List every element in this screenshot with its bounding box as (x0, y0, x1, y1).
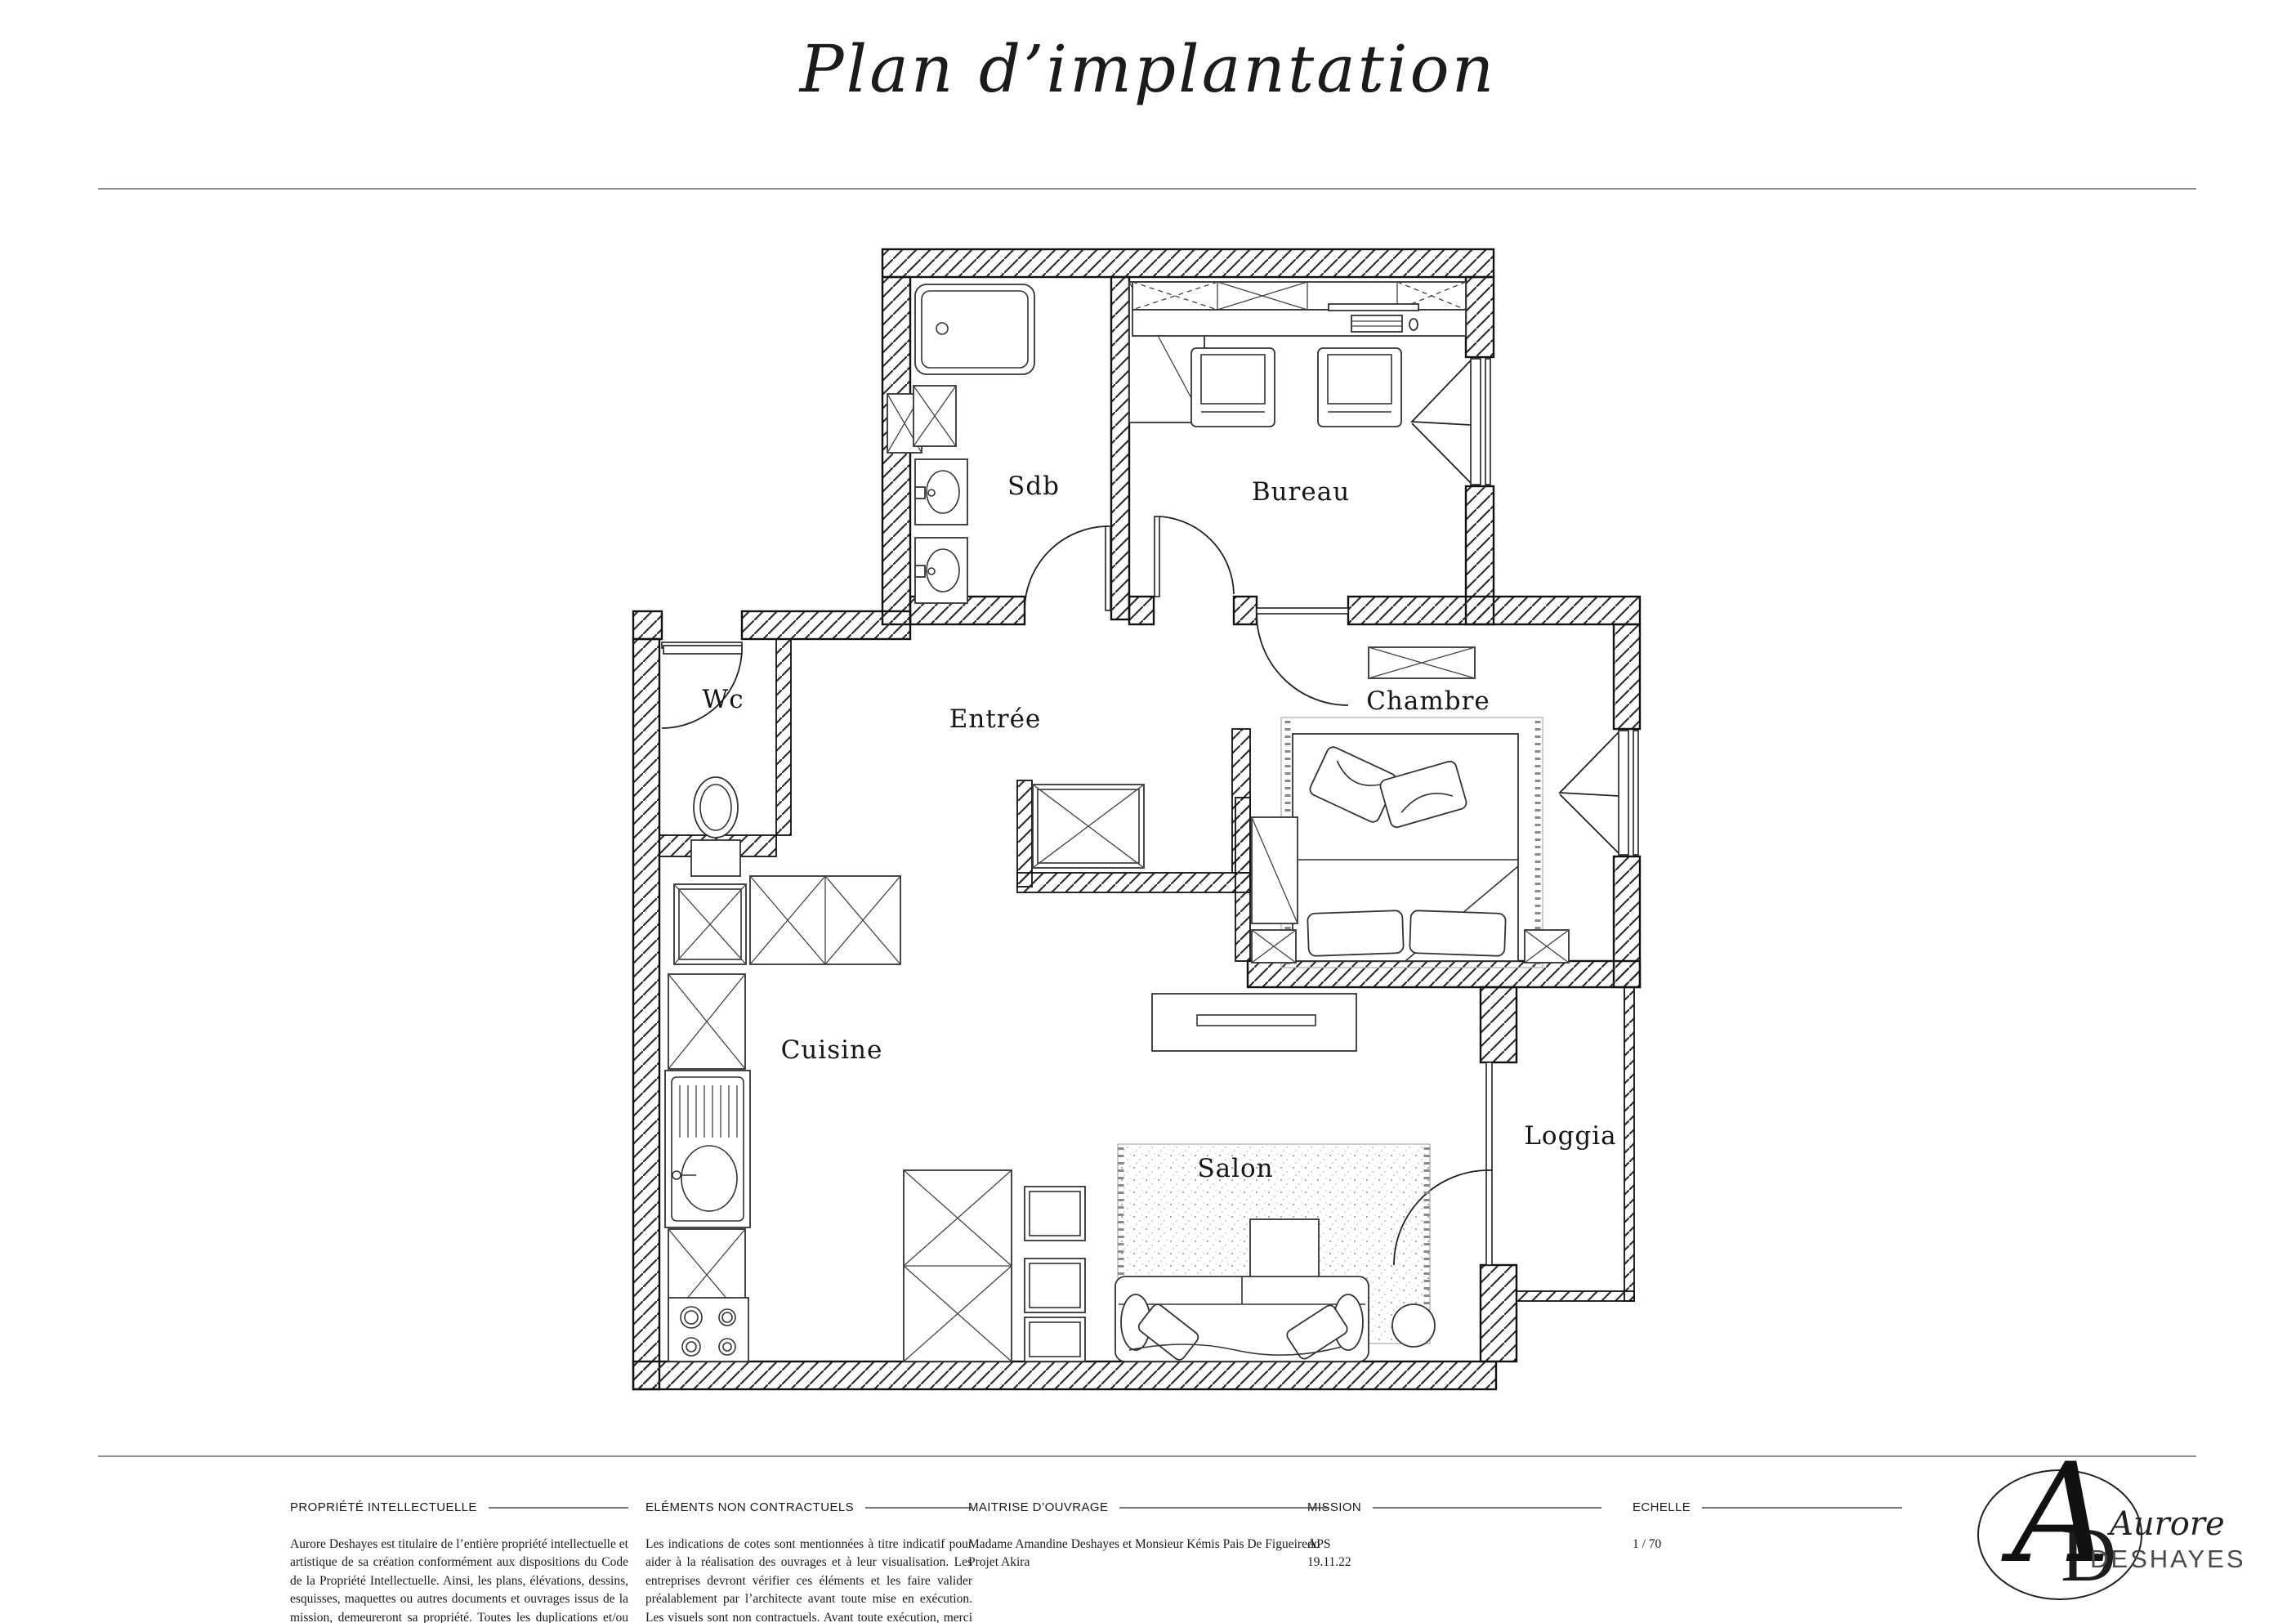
dining-table-icon (904, 1170, 1012, 1361)
washing-machine-icon (913, 386, 956, 446)
footer-section-propriete: PROPRIÉTÉ INTELLECTUELLE Aurore Deshayes… (290, 1500, 628, 1623)
heading-rule (489, 1507, 628, 1509)
heading-rule (1373, 1507, 1601, 1509)
chambre-window-icon (1560, 731, 1638, 855)
footer-body: Les indications de cotes sont mentionnée… (645, 1536, 972, 1623)
footer-rule (98, 1455, 2196, 1457)
floor-plan: Sdb Bureau Wc Entrée Chambre Cuisine Sal… (629, 245, 1659, 1414)
kitchen-sink-icon (665, 1071, 750, 1227)
room-label-salon: Salon (1197, 1154, 1273, 1183)
chambre-wardrobe-icon (1252, 817, 1298, 923)
footer-body: APS 19.11.22 (1307, 1536, 1601, 1572)
footer-section-echelle: ECHELLE 1 / 70 (1633, 1500, 1902, 1554)
footer-heading-label: ELÉMENTS NON CONTRACTUELS (645, 1500, 854, 1514)
footer-body: Aurore Deshayes est titulaire de l’entiè… (290, 1536, 628, 1623)
page-title: Plan d’implantation (0, 31, 2296, 107)
heading-rule (1702, 1507, 1902, 1509)
bureau-door-icon (1155, 516, 1234, 597)
footer-heading: ELÉMENTS NON CONTRACTUELS (645, 1500, 972, 1514)
side-table-icon (1392, 1304, 1435, 1347)
page: Plan d’implantation (0, 0, 2296, 1623)
footer-heading: MISSION (1307, 1500, 1601, 1514)
room-label-bureau: Bureau (1252, 477, 1350, 507)
room-label-wc: Wc (702, 685, 744, 714)
sofa-icon (1115, 1276, 1369, 1362)
bed-icon (1293, 734, 1518, 961)
bureau-window-icon (1412, 359, 1490, 485)
room-label-sdb: Sdb (1007, 472, 1060, 501)
footer-heading-label: ECHELLE (1633, 1500, 1691, 1514)
footer-heading: PROPRIÉTÉ INTELLECTUELLE (290, 1500, 628, 1514)
bathtub-icon (915, 284, 1034, 374)
entrance-door-icon (1257, 608, 1348, 705)
entry-closet-icon (1033, 785, 1144, 868)
office-chair-icon (1191, 348, 1401, 427)
heading-rule (865, 1507, 972, 1509)
logo-last-name: DESHAYES (2090, 1545, 2246, 1574)
footer-body: 1 / 70 (1633, 1536, 1902, 1554)
footer-body: Madame Amandine Deshayes et Monsieur Kém… (968, 1536, 1328, 1572)
sdb-door-icon (1025, 526, 1110, 610)
room-label-chambre: Chambre (1366, 686, 1490, 716)
footer-heading-label: PROPRIÉTÉ INTELLECTUELLE (290, 1500, 477, 1514)
room-label-entree: Entrée (949, 704, 1042, 734)
chambre-shelf-icon (1369, 647, 1475, 678)
room-label-cuisine: Cuisine (781, 1035, 883, 1065)
vanity-sink-icon (915, 459, 967, 603)
desk-icon (1132, 282, 1466, 336)
architect-logo: D A Aurore DESHAYES (1969, 1463, 2263, 1610)
footer-heading-label: MAITRISE D’OUVRAGE (968, 1500, 1108, 1514)
footer-section-mission: MISSION APS 19.11.22 (1307, 1500, 1601, 1572)
footer-heading-label: MISSION (1307, 1500, 1361, 1514)
dining-chair-icon (1025, 1187, 1085, 1361)
footer-section-elements: ELÉMENTS NON CONTRACTUELS Les indication… (645, 1500, 972, 1623)
logo-first-name: Aurore (2110, 1505, 2225, 1543)
header-rule (98, 188, 2196, 190)
stove-icon (668, 1298, 748, 1361)
footer-section-maitrise: MAITRISE D’OUVRAGE Madame Amandine Desha… (968, 1500, 1328, 1572)
footer-heading: MAITRISE D’OUVRAGE (968, 1500, 1328, 1514)
console-icon (1152, 994, 1356, 1051)
room-label-loggia: Loggia (1524, 1121, 1616, 1151)
heading-rule (1119, 1507, 1328, 1509)
footer-heading: ECHELLE (1633, 1500, 1902, 1514)
